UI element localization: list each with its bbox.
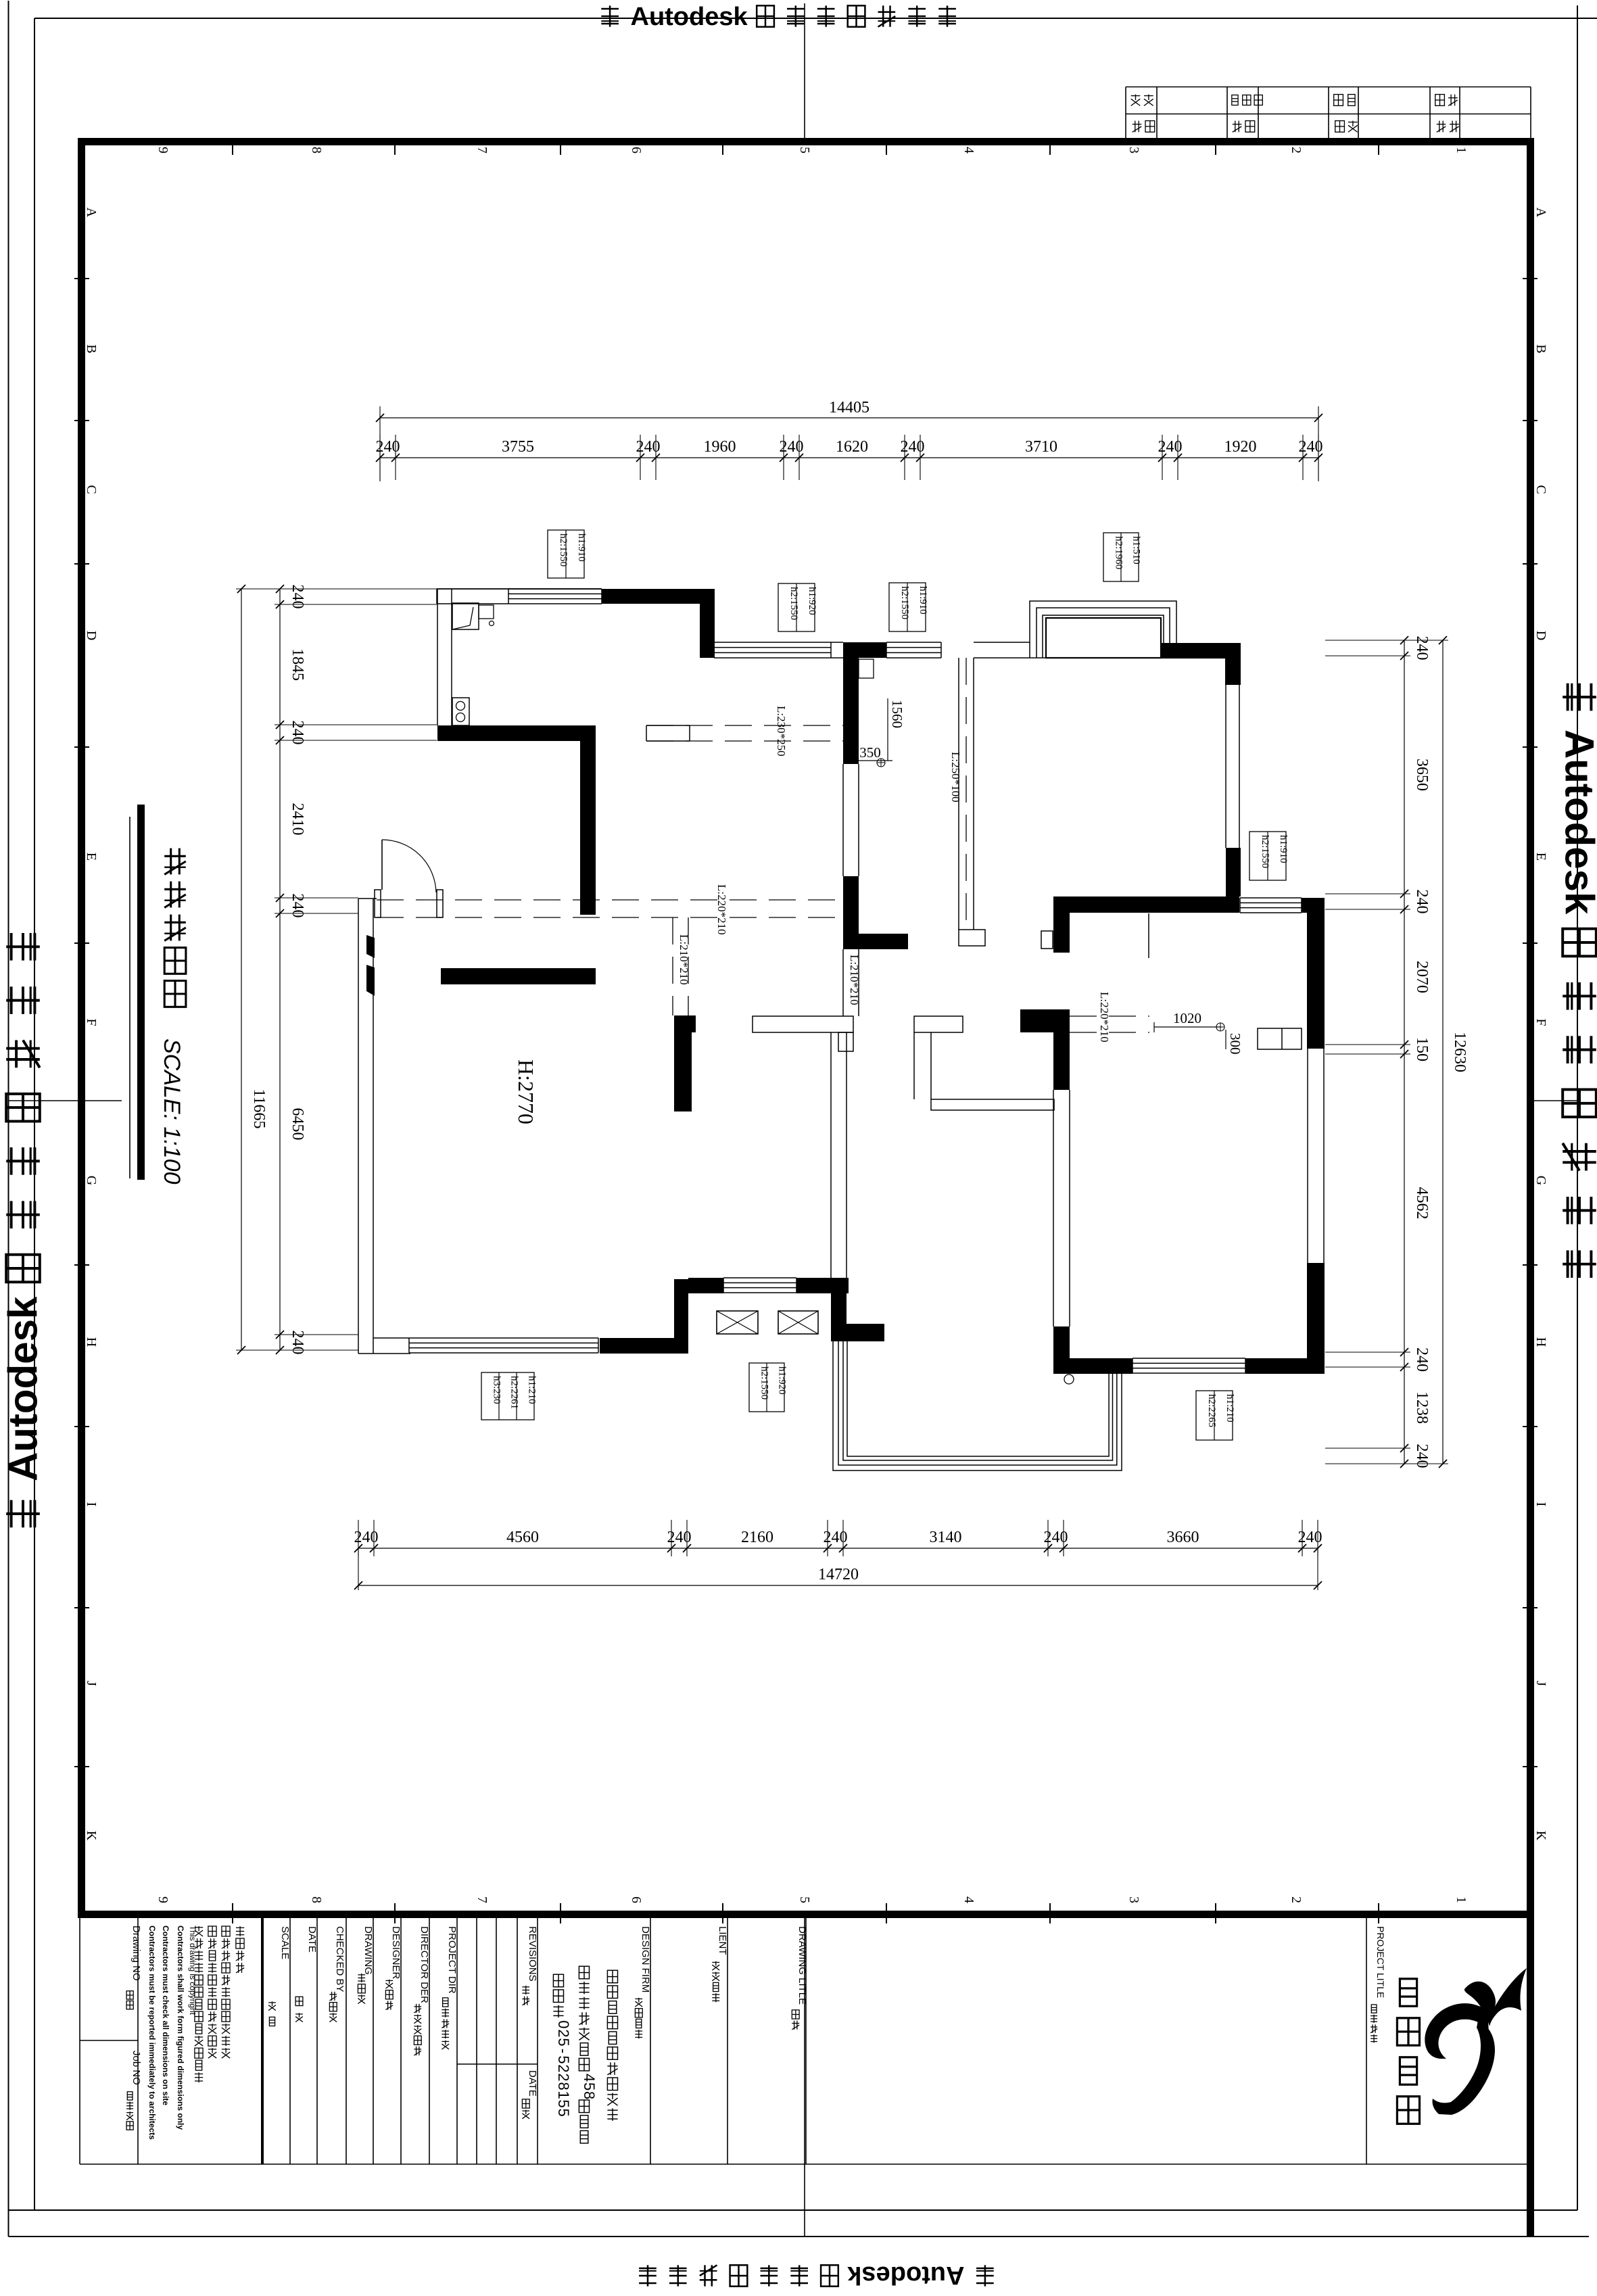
svg-text:240: 240	[289, 1331, 306, 1355]
svg-text:h1:910: h1:910	[1278, 835, 1289, 863]
svg-text:1: 1	[1454, 147, 1469, 153]
svg-text:6450: 6450	[289, 1108, 306, 1141]
svg-text:4: 4	[961, 1896, 976, 1903]
svg-text:3140: 3140	[930, 1529, 962, 1546]
svg-text:D: D	[1533, 631, 1548, 640]
svg-text:2160: 2160	[741, 1529, 773, 1546]
svg-text:240: 240	[1413, 1347, 1431, 1372]
svg-text:240: 240	[901, 438, 925, 456]
svg-text:This drawing is copyright: This drawing is copyright	[188, 1926, 197, 2015]
svg-text:1960: 1960	[704, 438, 736, 456]
svg-text:2: 2	[555, 2064, 572, 2072]
svg-text:F: F	[1533, 1018, 1548, 1026]
svg-text:Contractors shall work form fi: Contractors shall work form figured dime…	[176, 1926, 185, 2130]
svg-text:8: 8	[309, 147, 324, 153]
svg-text:5: 5	[555, 2038, 572, 2046]
svg-text:7: 7	[475, 1896, 490, 1903]
svg-text:14405: 14405	[829, 399, 869, 416]
svg-text:PROJECT LITLE: PROJECT LITLE	[1375, 1926, 1386, 1998]
svg-text:240: 240	[1413, 636, 1431, 661]
svg-text:A: A	[84, 208, 99, 218]
svg-text:L:220*210: L:220*210	[715, 884, 728, 935]
svg-text:240: 240	[1413, 890, 1431, 914]
svg-text:2: 2	[555, 2073, 572, 2081]
svg-text:2: 2	[555, 2029, 572, 2037]
svg-text:G: G	[1533, 1176, 1548, 1185]
svg-text:L:230*250: L:230*250	[775, 706, 788, 757]
svg-text:3755: 3755	[502, 438, 534, 456]
svg-text:12630: 12630	[1451, 1032, 1469, 1072]
svg-text:240: 240	[289, 721, 306, 745]
svg-text:6: 6	[629, 1896, 644, 1903]
svg-text:DATE: DATE	[527, 2070, 538, 2097]
svg-text:Autodesk: Autodesk	[847, 2261, 964, 2289]
svg-text:h3:230: h3:230	[491, 1376, 502, 1404]
svg-text:14720: 14720	[818, 1566, 859, 1583]
svg-text:D: D	[84, 631, 99, 640]
svg-text:300: 300	[1227, 1033, 1243, 1055]
svg-text:SCALE: 1:100: SCALE: 1:100	[159, 1038, 185, 1185]
svg-text:REVISIONS: REVISIONS	[527, 1926, 538, 1982]
svg-text:H: H	[84, 1337, 99, 1347]
svg-text:h2:1550: h2:1550	[558, 533, 569, 567]
svg-text:CHECKED BY: CHECKED BY	[334, 1926, 345, 1992]
svg-text:240: 240	[1298, 1529, 1322, 1546]
svg-text:150: 150	[1413, 1037, 1431, 1061]
svg-text:h2:2261: h2:2261	[508, 1376, 519, 1409]
svg-text:5: 5	[797, 1896, 812, 1903]
svg-text:h2:1550: h2:1550	[1260, 835, 1270, 868]
svg-text:240: 240	[1044, 1529, 1068, 1546]
svg-text:h1:910: h1:910	[576, 533, 587, 562]
svg-text:8: 8	[309, 1896, 324, 1903]
svg-text:h1:910: h1:910	[917, 586, 928, 615]
svg-text:5: 5	[581, 2082, 598, 2090]
svg-text:DRAWING: DRAWING	[362, 1926, 374, 1975]
svg-text:240: 240	[289, 894, 306, 918]
svg-text:K: K	[1533, 1831, 1548, 1841]
svg-text:h2:1960: h2:1960	[1113, 536, 1124, 569]
svg-text:3710: 3710	[1025, 438, 1057, 456]
svg-text:Drawing NO: Drawing NO	[130, 1926, 142, 1981]
svg-text:C: C	[1533, 485, 1548, 494]
svg-text:0: 0	[555, 2020, 572, 2028]
svg-text:PROJECT DIR: PROJECT DIR	[446, 1926, 458, 1994]
svg-text:8: 8	[581, 2091, 598, 2099]
svg-text:Job NO: Job NO	[130, 2051, 142, 2085]
svg-text:3650: 3650	[1413, 759, 1431, 791]
svg-text:240: 240	[289, 585, 306, 609]
svg-text:2070: 2070	[1413, 961, 1431, 993]
svg-text:240: 240	[667, 1529, 692, 1546]
svg-text:H:2770: H:2770	[514, 1059, 538, 1124]
svg-text:1020: 1020	[1173, 1010, 1201, 1026]
svg-text:B: B	[1533, 344, 1548, 353]
svg-text:1560: 1560	[889, 700, 905, 728]
svg-text:B: B	[84, 344, 99, 353]
svg-text:h1:210: h1:210	[1224, 1394, 1235, 1422]
svg-text:L:250*100: L:250*100	[949, 752, 962, 803]
svg-text:DIRECTOR DER: DIRECTOR DER	[419, 1926, 430, 2003]
svg-text:6: 6	[629, 147, 644, 153]
svg-text:E: E	[1533, 853, 1548, 861]
svg-text:240: 240	[376, 438, 400, 456]
svg-text:2: 2	[1289, 147, 1304, 153]
svg-text:L:220*210: L:220*210	[1098, 992, 1111, 1043]
svg-text:F: F	[84, 1018, 99, 1026]
svg-text:E: E	[84, 853, 99, 861]
svg-text:L:210*210: L:210*210	[677, 934, 690, 985]
svg-text:1: 1	[555, 2090, 572, 2099]
svg-text:240: 240	[1299, 438, 1323, 456]
svg-text:SCALE: SCALE	[279, 1926, 291, 1959]
svg-text:Autodesk: Autodesk	[0, 1296, 45, 1481]
svg-text:240: 240	[636, 438, 661, 456]
svg-text:7: 7	[475, 147, 490, 153]
svg-text:C: C	[84, 485, 99, 494]
svg-text:4: 4	[581, 2074, 598, 2082]
svg-text:240: 240	[780, 438, 804, 456]
svg-text:350: 350	[859, 744, 881, 761]
svg-text:1845: 1845	[289, 648, 306, 681]
svg-text:Autodesk: Autodesk	[1557, 730, 1597, 915]
svg-text:4560: 4560	[506, 1529, 539, 1546]
svg-text:DESIGNER: DESIGNER	[390, 1926, 402, 1980]
svg-text:5: 5	[555, 2099, 572, 2107]
svg-text:9: 9	[156, 147, 170, 153]
svg-text:I: I	[1533, 1502, 1548, 1507]
svg-text:9: 9	[156, 1896, 170, 1903]
svg-text:J: J	[84, 1681, 99, 1686]
svg-text:Autodesk: Autodesk	[631, 3, 748, 31]
svg-text:1920: 1920	[1224, 438, 1257, 456]
svg-text:h1:920: h1:920	[807, 587, 817, 615]
svg-text:240: 240	[1413, 1444, 1431, 1468]
svg-text:1620: 1620	[836, 438, 868, 456]
svg-text:h2:1550: h2:1550	[899, 586, 910, 619]
svg-text:h1:210: h1:210	[526, 1376, 537, 1404]
svg-text:h2:1550: h2:1550	[759, 1366, 769, 1400]
svg-text:4562: 4562	[1413, 1187, 1431, 1220]
svg-text:3: 3	[1126, 147, 1141, 153]
svg-text:A: A	[1533, 208, 1548, 218]
svg-text:L:210*210: L:210*210	[848, 955, 861, 1005]
svg-text:DRAWING LITLE: DRAWING LITLE	[796, 1926, 808, 2005]
svg-text:3: 3	[1126, 1896, 1141, 1903]
svg-text:11665: 11665	[250, 1089, 268, 1128]
svg-text:5: 5	[797, 147, 812, 153]
svg-text:-: -	[555, 2049, 572, 2053]
svg-text:1: 1	[1454, 1896, 1469, 1903]
svg-text:G: G	[84, 1176, 99, 1185]
svg-text:DATE: DATE	[306, 1926, 318, 1953]
svg-text:H: H	[1533, 1337, 1548, 1347]
svg-text:J: J	[1533, 1681, 1548, 1686]
svg-text:Contractors must be reported i: Contractors must be reported immediately…	[147, 1926, 157, 2140]
svg-text:2410: 2410	[289, 803, 306, 836]
svg-text:h2:2265: h2:2265	[1206, 1394, 1217, 1427]
svg-text:8: 8	[555, 2082, 572, 2090]
svg-text:4: 4	[961, 147, 976, 153]
svg-text:DESIGN FIRM: DESIGN FIRM	[640, 1926, 651, 1992]
svg-text:LIENT: LIENT	[717, 1926, 728, 1955]
svg-text:I: I	[84, 1502, 99, 1507]
svg-text:h1:510: h1:510	[1130, 536, 1141, 565]
svg-text:h1:920: h1:920	[776, 1366, 787, 1395]
svg-text:5: 5	[555, 2109, 572, 2117]
svg-text:240: 240	[354, 1529, 379, 1546]
svg-text:2: 2	[1289, 1896, 1304, 1903]
svg-text:3660: 3660	[1167, 1529, 1199, 1546]
svg-text:Contractors must check all dim: Contractors must check all dimensions on…	[161, 1926, 170, 2105]
svg-text:h2:1550: h2:1550	[788, 587, 799, 620]
svg-text:240: 240	[1158, 438, 1183, 456]
svg-text:5: 5	[555, 2055, 572, 2063]
svg-text:1238: 1238	[1413, 1391, 1431, 1424]
svg-text:K: K	[84, 1831, 99, 1841]
svg-text:240: 240	[824, 1529, 848, 1546]
